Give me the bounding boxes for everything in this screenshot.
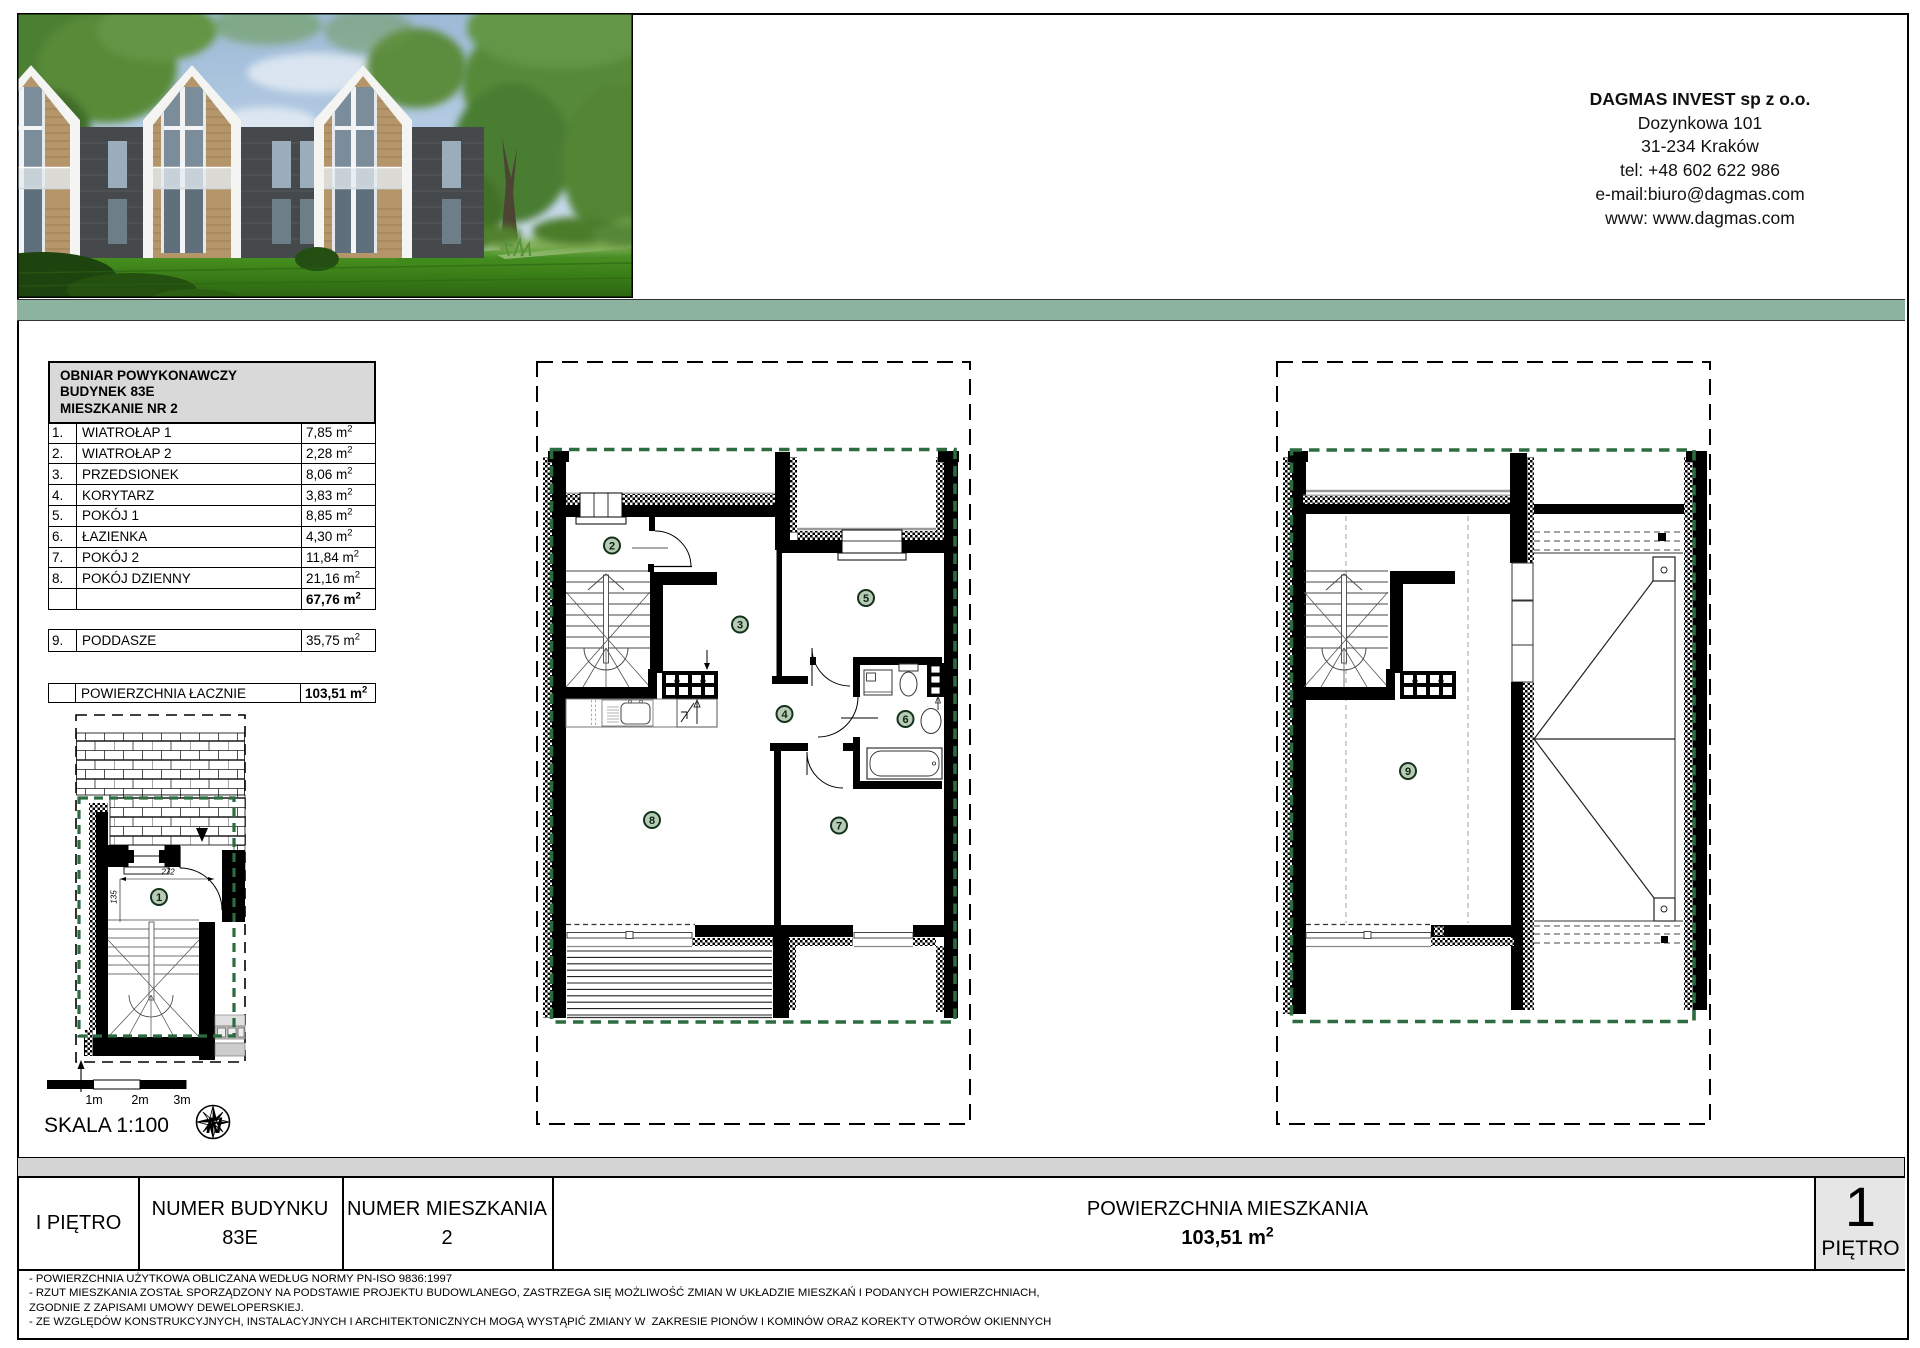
svg-text:3: 3 — [737, 620, 743, 632]
svg-text:8: 8 — [649, 815, 655, 827]
svg-text:2: 2 — [609, 541, 615, 553]
svg-text:1: 1 — [156, 892, 162, 904]
svg-text:N: N — [206, 1113, 223, 1138]
svg-text:3m: 3m — [173, 1093, 190, 1107]
svg-text:5: 5 — [863, 593, 869, 605]
svg-text:272: 272 — [160, 868, 175, 877]
svg-text:4: 4 — [781, 709, 788, 721]
svg-text:7: 7 — [836, 821, 842, 833]
svg-text:1m: 1m — [85, 1093, 102, 1107]
svg-text:135: 135 — [110, 890, 119, 904]
svg-text:2m: 2m — [131, 1093, 148, 1107]
svg-text:6: 6 — [902, 714, 908, 726]
svg-text:9: 9 — [1405, 766, 1411, 778]
svg-text:SKALA 1:100: SKALA 1:100 — [44, 1114, 169, 1137]
